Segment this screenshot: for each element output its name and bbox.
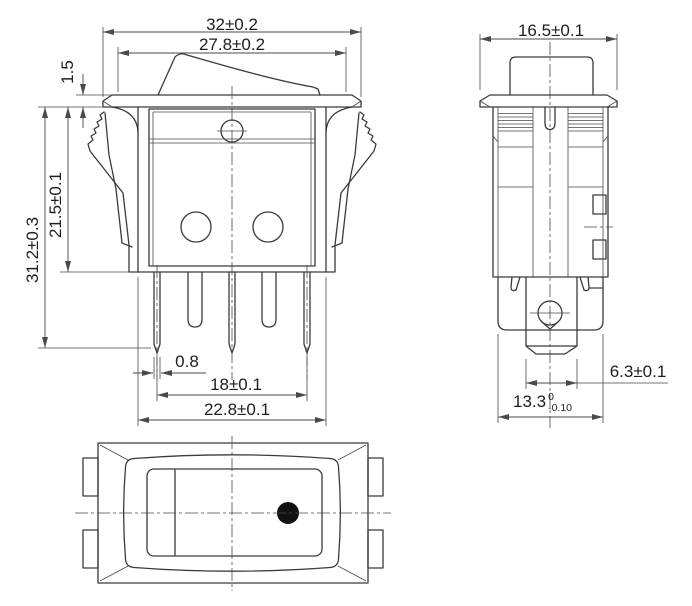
base-block — [498, 277, 603, 330]
line-art — [0, 0, 692, 606]
dimension-bezel-width: 27.8±0.2 — [157, 36, 307, 54]
dimension-flange-thickness: 1.5 — [59, 52, 77, 92]
dimension-terminal-width: 6.3±0.1 — [583, 363, 692, 381]
latch-section-upper — [593, 195, 606, 214]
dimension-body-width-front: 22.8±0.1 — [182, 401, 292, 419]
mounting-wing-left — [88, 112, 138, 272]
tab-left-bottom — [83, 530, 98, 568]
stub-left — [188, 272, 202, 327]
mounting-wing-right — [326, 112, 376, 272]
dimension-body-width-side: 13.3 0 -0.10 — [513, 393, 572, 414]
latch-section-lower — [593, 240, 606, 259]
stub-right — [262, 272, 276, 327]
hole-right — [253, 212, 283, 242]
flange-side — [480, 95, 617, 107]
dimension-body-height: 21.5±0.1 — [47, 160, 65, 250]
tab-right-bottom — [368, 530, 383, 568]
rocker-side — [510, 57, 593, 95]
bottom-view — [75, 436, 391, 591]
dimension-body-width-side-tolerance: 0 -0.10 — [548, 392, 572, 414]
hole-left — [181, 212, 211, 242]
terminal-blade — [526, 277, 577, 354]
dimension-overall-height: 31.2±0.3 — [24, 205, 42, 295]
dimension-pin-thickness: 0.8 — [165, 353, 209, 371]
drawing-canvas: 32±0.2 27.8±0.2 1.5 21.5±0.1 31.2±0.3 0.… — [0, 0, 692, 606]
dimension-pin-span: 18±0.1 — [191, 376, 281, 394]
tab-left-top — [83, 458, 98, 496]
rocker-profile — [158, 54, 320, 95]
dimension-side-width: 16.5±0.1 — [481, 22, 621, 40]
dimension-overall-width: 32±0.2 — [162, 16, 302, 34]
dimension-body-width-side-value: 13.3 — [513, 393, 546, 411]
tab-right-top — [368, 458, 383, 496]
